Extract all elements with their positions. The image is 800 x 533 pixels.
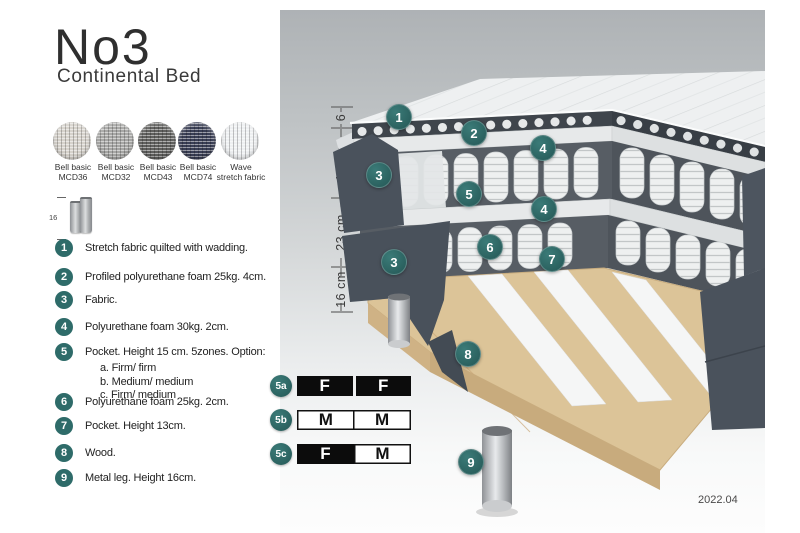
firmness-cell: F <box>297 444 354 464</box>
firmness-cell: M <box>297 410 355 430</box>
version-label: 2022.04 <box>698 494 738 506</box>
firmness-cell: F <box>297 376 353 396</box>
marker-5: 5 <box>456 181 482 207</box>
marker-8: 8 <box>455 341 481 367</box>
marker-3-upper: 3 <box>366 162 392 188</box>
firmness-cell: M <box>353 410 411 430</box>
firmness-row-5a: 5a F F <box>297 376 411 396</box>
marker-7: 7 <box>539 246 565 272</box>
dimension-label-16cm: 16 cm <box>334 271 348 308</box>
firmness-row-5c: 5c F M <box>297 444 411 464</box>
firmness-badge-5b: 5b <box>270 409 292 431</box>
firmness-cell: M <box>354 444 411 464</box>
marker-4-upper: 4 <box>530 135 556 161</box>
marker-3-lower: 3 <box>381 249 407 275</box>
marker-9: 9 <box>458 449 484 475</box>
marker-4-lower: 4 <box>531 196 557 222</box>
marker-2: 2 <box>461 120 487 146</box>
firmness-badge-5a: 5a <box>270 375 292 397</box>
firmness-badge-5c: 5c <box>270 443 292 465</box>
dimension-label-6: 6 <box>334 114 348 121</box>
firmness-row-5b: 5b M M <box>297 410 411 430</box>
firmness-cell: F <box>356 376 412 396</box>
marker-1: 1 <box>386 104 412 130</box>
marker-6: 6 <box>477 234 503 260</box>
